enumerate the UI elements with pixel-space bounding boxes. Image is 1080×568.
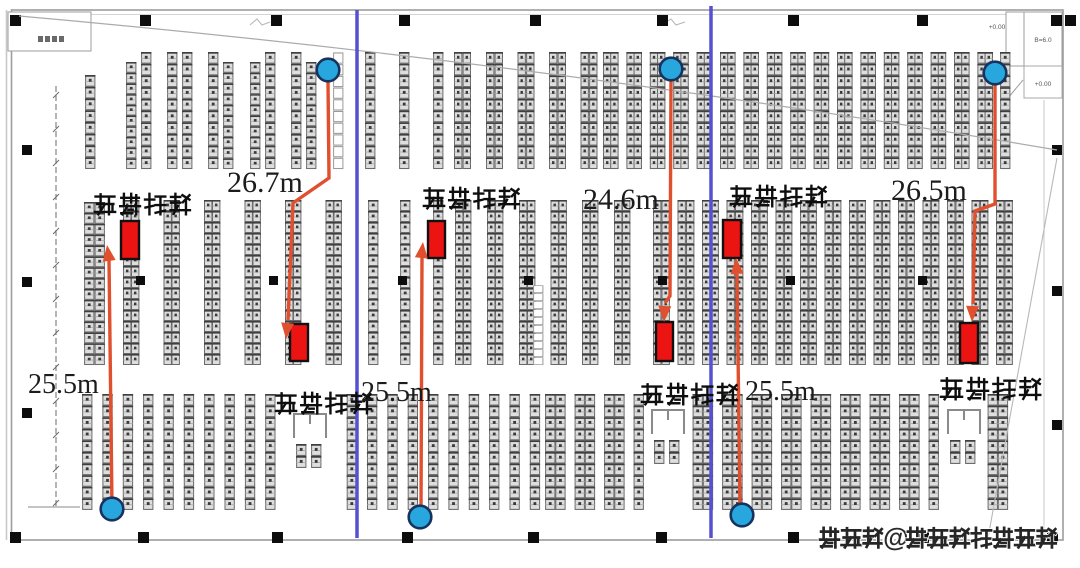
svg-text:25.5m: 25.5m [28, 369, 99, 400]
svg-text:+0.00: +0.00 [989, 24, 1006, 31]
svg-text:24.6m: 24.6m [583, 183, 659, 216]
svg-text:@: @ [883, 522, 908, 552]
svg-text:26.7m: 26.7m [227, 166, 303, 199]
svg-text:+0.00: +0.00 [1035, 81, 1052, 88]
svg-text:25.5m: 25.5m [361, 377, 432, 408]
svg-text:25.5m: 25.5m [745, 376, 816, 407]
svg-text:26.5m: 26.5m [891, 174, 967, 207]
svg-text:B=6.0: B=6.0 [1034, 37, 1052, 44]
